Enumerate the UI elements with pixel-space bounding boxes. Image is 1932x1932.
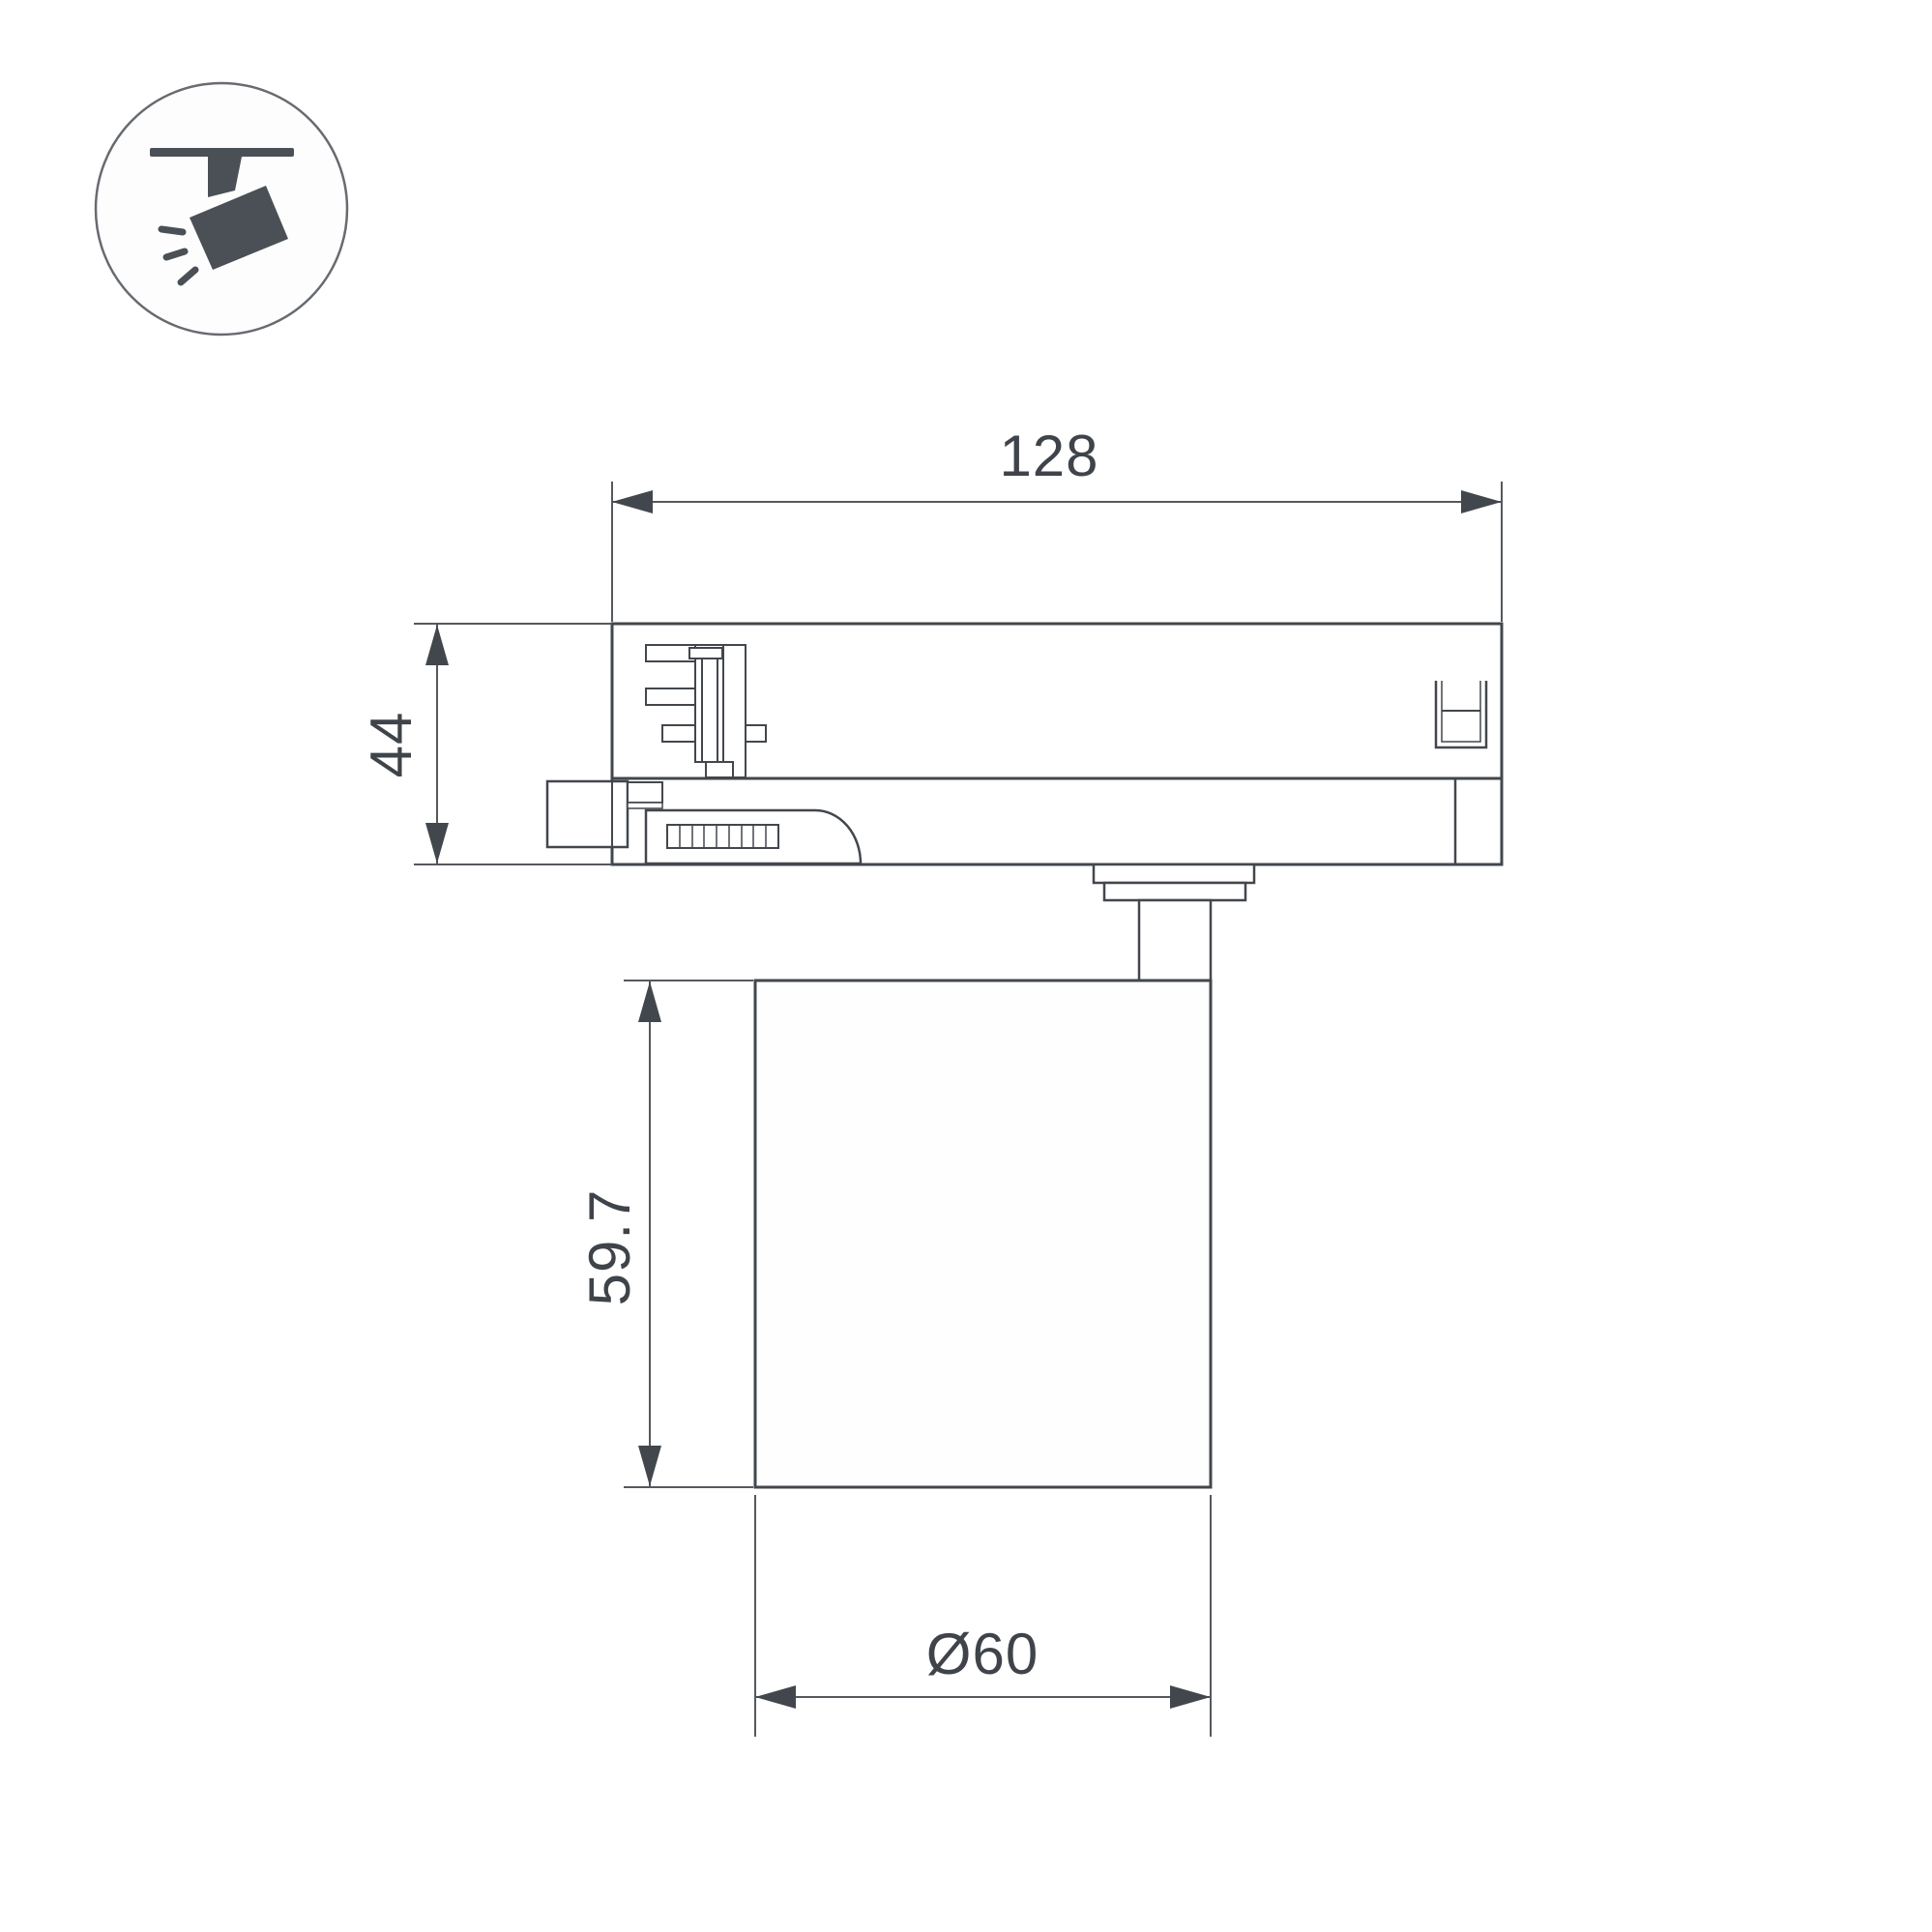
pivot-flange-1 (1094, 864, 1254, 883)
pivot-flange-2 (1104, 883, 1245, 900)
arrow-right (1461, 490, 1502, 513)
dimension-128-label: 128 (999, 424, 1098, 488)
dimension-drawing: 128 44 59.7 Ø60 (0, 0, 1932, 1932)
dimension-59-7 (624, 981, 753, 1487)
adjustment-ribs (667, 825, 778, 848)
dimension-44-label: 44 (359, 712, 424, 778)
arrow-down (638, 1446, 661, 1486)
contact-prong-top (646, 645, 695, 661)
contact-bar (723, 645, 746, 777)
arrow-up (638, 981, 661, 1022)
pivot-stem (1139, 900, 1211, 981)
arrow-down (425, 823, 449, 864)
latch-step (628, 782, 662, 803)
latch-bar (628, 803, 662, 808)
lamp-body (755, 981, 1211, 1487)
contact-stub (746, 725, 766, 742)
dimension-59-7-label: 59.7 (577, 1189, 642, 1306)
rib-box (667, 825, 778, 848)
dimension-diameter-60-label: Ø60 (926, 1622, 1039, 1686)
dimension-128 (612, 482, 1502, 622)
track-spotlight-icon (96, 83, 347, 335)
contact-cap (689, 648, 722, 659)
arrow-left (612, 490, 653, 513)
arrow-right (1170, 1685, 1211, 1709)
contact-foot (706, 762, 733, 777)
track-adapter (547, 624, 1502, 981)
contact-prong-bottom (662, 725, 695, 742)
arrow-up (425, 625, 449, 665)
pivot-joint (1094, 864, 1254, 981)
icon-track-bar (150, 148, 294, 157)
contact-prong-middle (646, 688, 695, 705)
dimension-diameter-60 (755, 1495, 1211, 1737)
contact-screw (702, 659, 717, 762)
lock-knob (547, 781, 628, 847)
drawing-canvas: 128 44 59.7 Ø60 (0, 0, 1932, 1932)
arrow-left (755, 1685, 796, 1709)
